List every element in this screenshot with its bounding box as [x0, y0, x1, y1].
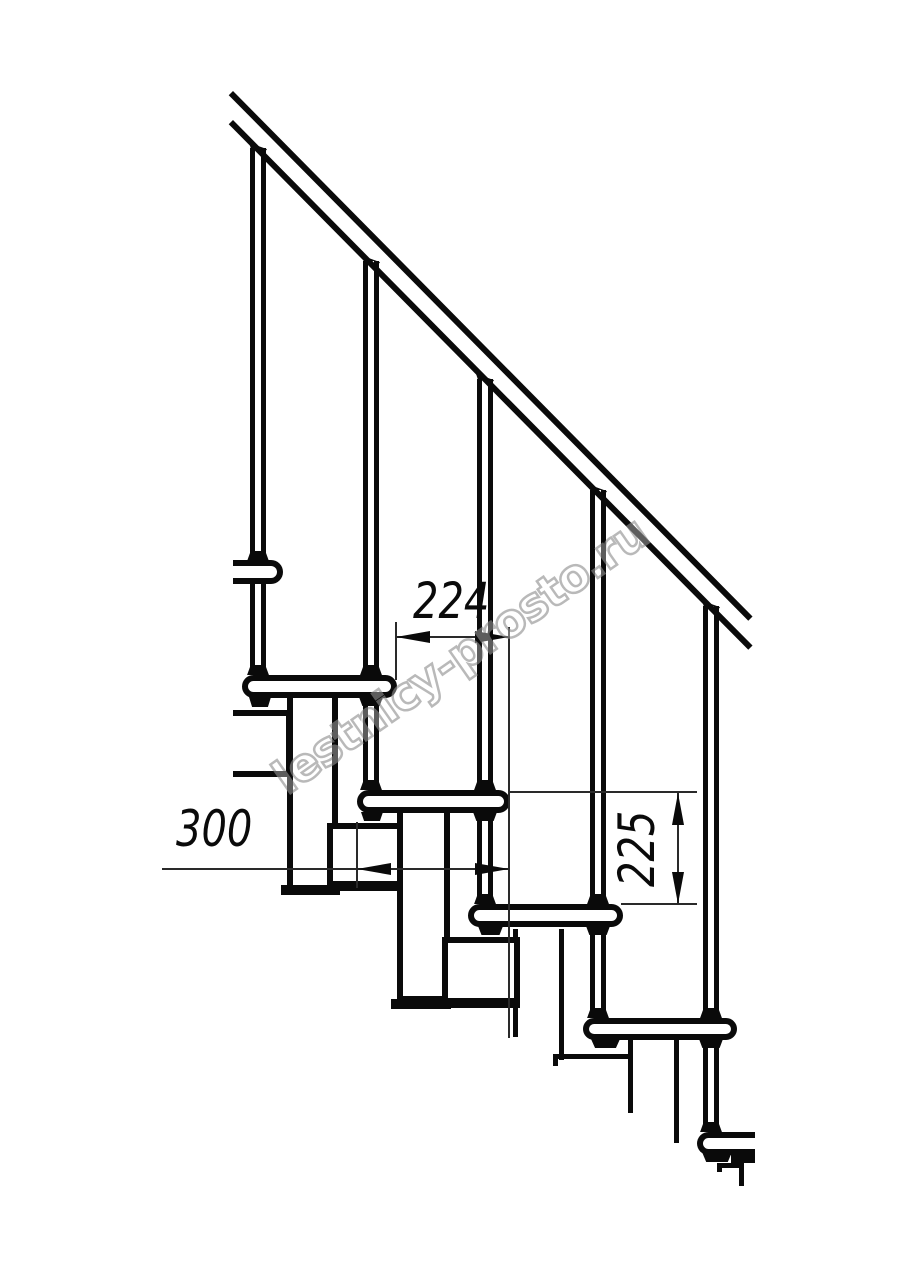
tread5-mount-nub — [702, 1152, 732, 1162]
tread-4 — [583, 1018, 737, 1040]
dim-rise-arrow-down — [672, 872, 684, 904]
dim-depth-label: 300 — [176, 804, 248, 854]
dim-rise-label: 225 — [612, 815, 662, 887]
tread2-mount-nub — [361, 812, 383, 821]
dim-rise-ref-top — [510, 791, 697, 793]
dim-depth-ext-left — [356, 822, 358, 888]
module-box-4-left-hook — [717, 1163, 722, 1172]
staircase-technical-drawing: 224 300 225 lestnicy-prosto.ru — [0, 0, 914, 1280]
baluster-rod-5-upper — [703, 606, 719, 1018]
tread3-rod-nub — [586, 926, 610, 935]
rod2-collar-tread1 — [358, 665, 384, 675]
baluster-rod-1-upper — [250, 148, 266, 560]
baluster-rod-5-lower — [703, 1040, 719, 1132]
support-column-4-left-edge — [628, 1040, 633, 1113]
rod3-collar-tread2 — [472, 780, 498, 790]
rod2-foot-tread2 — [358, 780, 384, 790]
dim-rise-ref-bottom — [621, 903, 697, 905]
rod1-foot-tread1 — [245, 665, 271, 675]
rod4-foot-tread4 — [585, 1008, 611, 1018]
rod5-collar-tread4 — [698, 1008, 724, 1018]
dim-run-arrow-left — [396, 631, 430, 643]
baluster-rod-4-lower — [590, 927, 606, 1018]
tread4-mount-nub — [591, 1039, 620, 1048]
module-box-1 — [327, 823, 405, 891]
module-box-3-left-hook — [553, 1054, 558, 1066]
support-column-3-right-edge — [559, 929, 564, 1060]
landing-tread — [233, 560, 283, 584]
support-column-4-right-edge — [674, 1040, 679, 1143]
dim-depth-line — [162, 868, 510, 870]
rod4-collar-tread3 — [585, 894, 611, 904]
tread5-edge-block — [731, 1152, 755, 1163]
tread2-rod-nub — [473, 812, 497, 821]
tread4-rod-nub — [699, 1039, 723, 1048]
module-box-4-right-edge — [739, 1163, 744, 1186]
rod5-foot-tread5 — [698, 1122, 724, 1132]
tread3-mount-nub — [478, 926, 503, 935]
tread1-mount-nub — [249, 697, 271, 707]
baluster-rod-3-lower — [477, 813, 493, 904]
tread-3 — [468, 904, 623, 927]
rod3-foot-tread3 — [472, 894, 498, 904]
tread-2 — [357, 790, 510, 813]
dim-shared-ext-right — [508, 627, 510, 1038]
baluster-rod-2-upper — [363, 261, 379, 675]
baluster-rod-1-lower — [250, 584, 266, 675]
dim-rise-arrow-up — [672, 793, 684, 825]
module-box-3-top-edge — [553, 1054, 631, 1059]
